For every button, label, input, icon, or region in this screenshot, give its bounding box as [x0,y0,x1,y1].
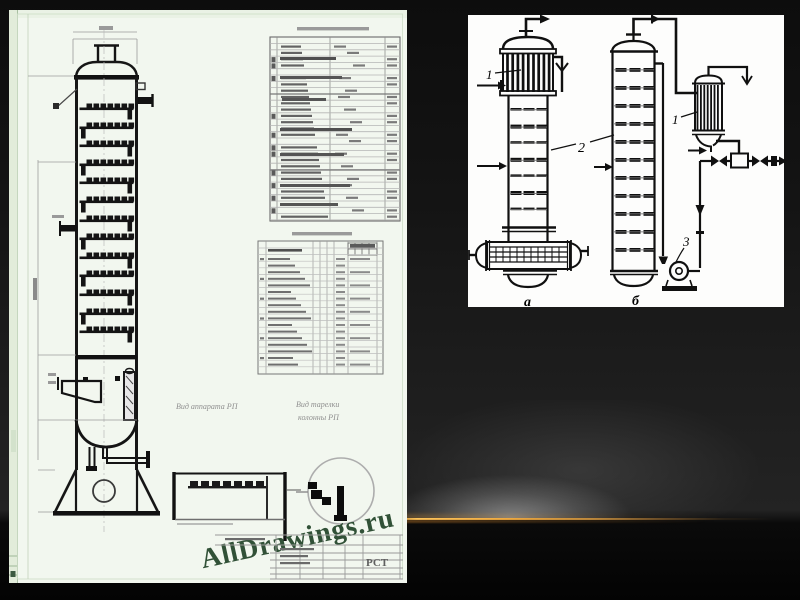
svg-text:1: 1 [672,112,679,127]
svg-text:б: б [632,294,640,309]
svg-text:Вид аппарата РП: Вид аппарата РП [176,402,239,411]
svg-text:колонны РП: колонны РП [298,413,340,422]
svg-text:РСТ: РСТ [366,557,389,569]
svg-text:1: 1 [486,67,493,82]
svg-text:а: а [524,295,531,310]
svg-text:2: 2 [578,141,585,156]
svg-text:Вид тарелки: Вид тарелки [296,400,339,409]
svg-text:3: 3 [682,234,690,249]
